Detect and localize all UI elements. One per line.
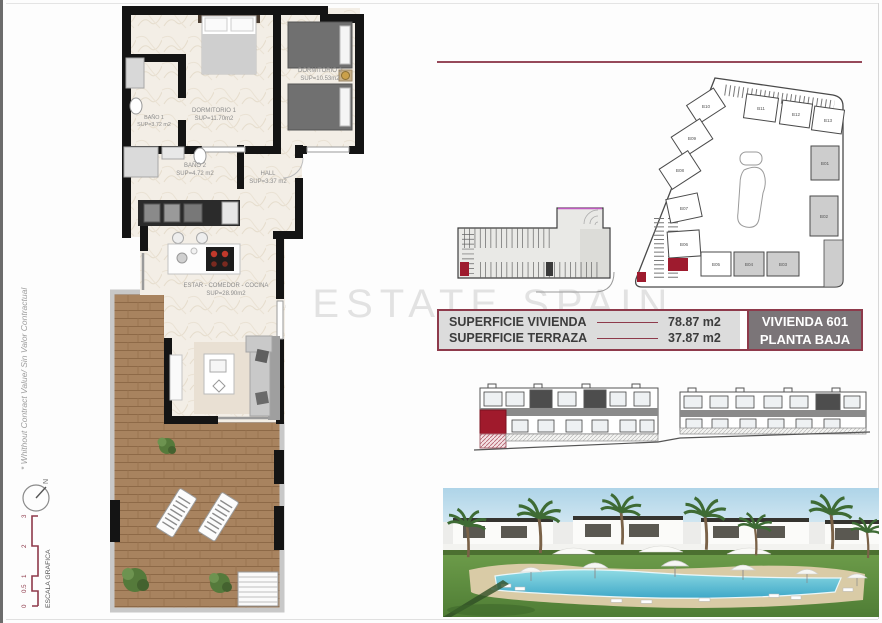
elevation-right-building (680, 388, 866, 434)
svg-text:0: 0 (21, 604, 28, 608)
north-label: N (43, 479, 50, 484)
highlighted-unit (668, 258, 688, 271)
svg-text:B10: B10 (702, 104, 711, 109)
svg-text:B05: B05 (712, 262, 721, 267)
room-label: BAÑO 2 (184, 162, 207, 169)
leader-line (597, 321, 658, 323)
elevation-left-building (480, 384, 658, 448)
svg-text:B04: B04 (745, 262, 754, 267)
scale-bar-label: ESCALA GRAFICA (45, 549, 52, 608)
elevation-drawing (474, 382, 874, 466)
table-row: SUPERFICIE VIVIENDA 78.87 m2 (449, 315, 730, 329)
room-sup: SUP=3.72 m2 (137, 122, 171, 128)
stairs (238, 572, 278, 606)
disclaimer-vertical-text: * Whithout Contract Value/ Sin Valor Con… (19, 288, 29, 470)
room-label: ESTAR - COMEDOR - COCINA (184, 283, 269, 289)
svg-text:B06: B06 (680, 242, 689, 247)
unit-number: VIVIENDA 601 (749, 314, 861, 329)
surface-value: 37.87 m2 (668, 331, 730, 345)
svg-text:B09: B09 (688, 136, 697, 141)
surface-label: SUPERFICIE VIVIENDA (449, 315, 587, 329)
svg-text:B03: B03 (779, 262, 788, 267)
svg-text:B08: B08 (676, 168, 685, 173)
svg-text:B02: B02 (820, 214, 829, 219)
table-gap (740, 311, 747, 349)
surface-rows: SUPERFICIE VIVIENDA 78.87 m2 SUPERFICIE … (439, 311, 740, 349)
accent-divider-line (437, 61, 862, 63)
surface-value: 78.87 m2 (668, 315, 730, 329)
highlighted-elevation-unit (480, 410, 506, 434)
highlighted-corner (637, 272, 646, 282)
unit-badge: VIVIENDA 601 PLANTA BAJA (747, 311, 861, 349)
svg-text:0.5: 0.5 (21, 584, 28, 593)
room-sup: SUP=28.90m2 (206, 291, 246, 297)
core-block (546, 262, 553, 276)
scale-bar: 0 0.5 1 2 3 ESCALA GRAFICA (8, 498, 62, 618)
svg-text:1: 1 (21, 574, 28, 578)
svg-text:2: 2 (21, 544, 28, 548)
page-border-left (0, 0, 3, 623)
plan-sheet: - ESTATE SPAIN * Whithout Contract Value… (0, 0, 882, 623)
surface-summary-table: SUPERFICIE VIVIENDA 78.87 m2 SUPERFICIE … (437, 309, 863, 351)
site-gray-zone (824, 240, 843, 287)
svg-text:B07: B07 (680, 206, 689, 211)
room-sup: SUP=10.53m2 (300, 76, 340, 82)
svg-text:3: 3 (21, 514, 28, 518)
page-border-top (6, 3, 878, 4)
room-label: HALL (260, 171, 276, 177)
svg-text:B11: B11 (757, 106, 765, 111)
room-sup: SUP=4.72 m2 (176, 171, 214, 177)
scale-bar-line (32, 516, 38, 606)
svg-text:B01: B01 (821, 161, 830, 166)
surface-label: SUPERFICIE TERRAZA (449, 331, 587, 345)
unit-floor: PLANTA BAJA (749, 332, 861, 347)
svg-text:B13: B13 (824, 118, 833, 123)
garage-ramp-zone (580, 229, 609, 277)
highlighted-plinth (480, 434, 506, 448)
room-sup: SUP=3.37 m2 (249, 179, 287, 185)
svg-text:B12: B12 (792, 112, 801, 117)
highlighted-parking-space (460, 262, 469, 276)
north-needle (36, 487, 46, 498)
room-label: DORMITORIO 1 (192, 108, 237, 114)
floor-plan: BAÑO 1 SUP=3.72 m2 DORMITORIO 1 SUP=11.7… (110, 6, 382, 618)
bed-double (198, 15, 260, 74)
room-sup: SUP=11.70m2 (195, 116, 234, 122)
room-label: BAÑO 1 (144, 114, 164, 121)
table-row: SUPERFICIE TERRAZA 37.87 m2 (449, 331, 730, 345)
photo-render (443, 488, 879, 617)
scale-ticks: 0 0.5 1 2 3 (21, 514, 28, 608)
site-plan: B10 B09 B08 B07 B06 B05 B04 B03 B11 B12 … (628, 68, 880, 293)
kitchen-counter (138, 200, 240, 226)
garage-plan (448, 196, 620, 298)
room-label: DORMITORIO 2 (298, 68, 343, 74)
leader-line (597, 337, 658, 339)
page-border-bottom (6, 619, 878, 620)
